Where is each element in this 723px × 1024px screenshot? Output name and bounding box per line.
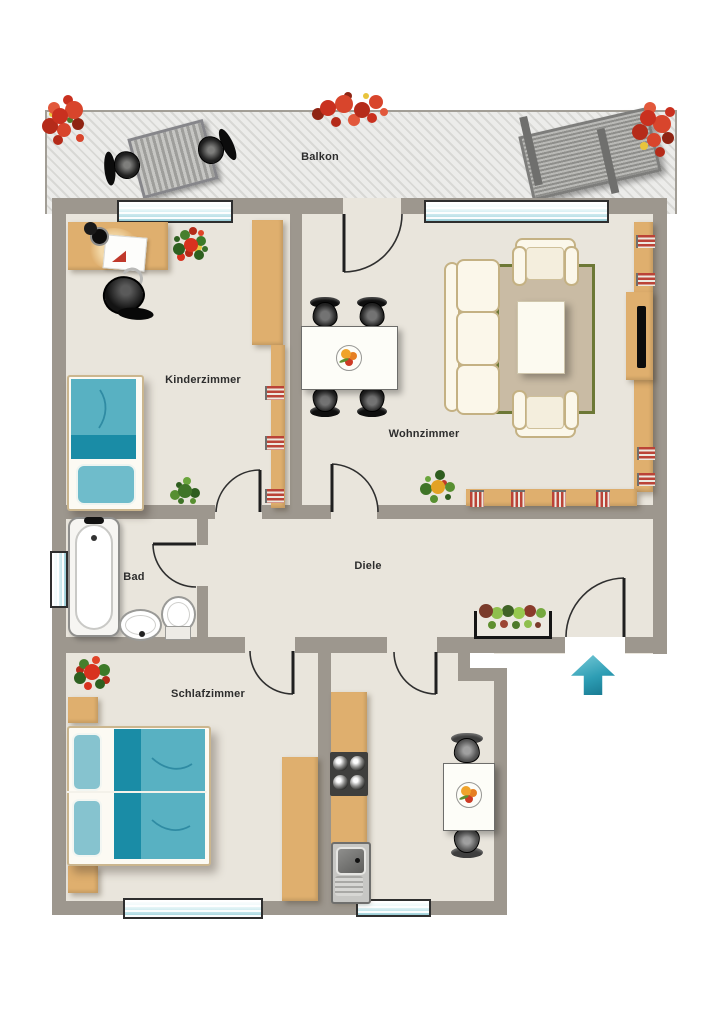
wall-bad-right-bottom bbox=[197, 586, 208, 639]
chair-back bbox=[117, 306, 154, 320]
basin-tap bbox=[139, 631, 145, 637]
sofa-cushion bbox=[456, 259, 500, 313]
green-plant bbox=[431, 480, 445, 494]
books bbox=[637, 473, 655, 486]
nightstand bbox=[68, 866, 98, 893]
armchair-arm bbox=[564, 390, 579, 430]
sink-drainboard bbox=[335, 876, 363, 896]
books bbox=[511, 490, 525, 507]
poinsettia-plant bbox=[184, 238, 198, 252]
flower-box bbox=[52, 108, 68, 124]
wall-bad-right-top bbox=[197, 519, 208, 545]
bathtub-tap bbox=[84, 517, 104, 524]
window-bad bbox=[50, 551, 68, 608]
chair-seat bbox=[360, 387, 385, 412]
dining-chair bbox=[357, 300, 387, 327]
room-label-diele: Diele bbox=[354, 560, 381, 572]
sink-tap bbox=[355, 858, 360, 863]
window-wohnzimmer bbox=[424, 200, 609, 223]
wall-diele-bottom-b bbox=[295, 637, 387, 653]
wall-diele-bottom-c bbox=[437, 637, 565, 653]
plant-box-plants bbox=[479, 604, 493, 618]
flower-box bbox=[640, 110, 656, 126]
fruit-leaf bbox=[459, 794, 469, 800]
flower-box bbox=[320, 100, 336, 116]
single-bed-pillow bbox=[76, 464, 136, 505]
books bbox=[552, 490, 566, 507]
bed-pillow bbox=[72, 733, 102, 791]
wall-entrance-right bbox=[625, 637, 667, 653]
armchair-arm bbox=[512, 390, 527, 430]
room-label-schlafzimmer: Schlafzimmer bbox=[171, 688, 245, 700]
nightstand bbox=[68, 697, 98, 723]
wall-kitchen-east bbox=[494, 668, 507, 915]
books bbox=[636, 235, 655, 248]
wall-bottom bbox=[52, 901, 507, 915]
wardrobe bbox=[282, 757, 318, 901]
books bbox=[596, 490, 610, 507]
poinsettia-plant bbox=[84, 664, 100, 680]
armchair bbox=[512, 388, 579, 438]
books bbox=[637, 447, 655, 460]
kinderzimmer-shelf-wide bbox=[252, 220, 283, 345]
stove-burner bbox=[350, 775, 365, 790]
single-bed-band bbox=[71, 435, 136, 459]
entrance-arrow bbox=[571, 655, 615, 695]
stove-burner bbox=[333, 756, 348, 771]
kinderzimmer-shelf-narrow bbox=[271, 345, 285, 508]
armchair-seat bbox=[526, 396, 564, 429]
coffee-table bbox=[517, 301, 565, 374]
fruit-bowl bbox=[336, 345, 362, 371]
kitchen-sink-basin bbox=[336, 847, 366, 875]
room-label-bad: Bad bbox=[123, 571, 144, 583]
books bbox=[636, 273, 655, 286]
double-bed-split bbox=[67, 791, 207, 793]
books bbox=[265, 489, 284, 503]
entrance-threshold bbox=[565, 637, 625, 654]
double-bed-band bbox=[114, 729, 141, 859]
dining-chair bbox=[310, 300, 340, 327]
armchair-arm bbox=[564, 246, 579, 286]
fruit-bowl bbox=[456, 782, 482, 808]
armchair-seat bbox=[526, 247, 564, 280]
chair-seat bbox=[313, 387, 338, 412]
wall-right bbox=[653, 198, 667, 654]
fruit-leaf bbox=[339, 357, 349, 363]
double-bed-blanket bbox=[141, 729, 205, 859]
sofa-cushion bbox=[456, 311, 500, 366]
toilet-tank bbox=[165, 626, 191, 640]
dining-chair bbox=[357, 387, 387, 414]
toilet-bowl bbox=[167, 602, 190, 627]
bathtub-drain bbox=[91, 535, 97, 541]
green-plant bbox=[178, 484, 192, 498]
bed-pillow bbox=[72, 799, 102, 857]
armchair-arm bbox=[512, 246, 527, 286]
books bbox=[265, 386, 284, 400]
chair-seat bbox=[360, 302, 385, 327]
window-kinderzimmer bbox=[117, 200, 233, 223]
exterior-notch bbox=[470, 653, 494, 668]
room-label-wohnzimmer: Wohnzimmer bbox=[389, 428, 460, 440]
tv bbox=[637, 306, 646, 368]
wall-mid-c bbox=[377, 505, 667, 519]
stove-burner bbox=[350, 756, 365, 771]
sofa-cushion bbox=[456, 364, 500, 415]
window-schlafzimmer bbox=[123, 898, 263, 919]
chair-seat bbox=[111, 148, 143, 182]
books bbox=[265, 436, 284, 450]
books bbox=[470, 490, 484, 507]
stove-burner bbox=[333, 775, 348, 790]
chair-seat bbox=[313, 302, 338, 327]
kitchen-chair bbox=[451, 736, 483, 763]
room-label-kinderzimmer: Kinderzimmer bbox=[165, 374, 241, 386]
kitchen-chair bbox=[451, 828, 483, 855]
dining-chair bbox=[310, 387, 340, 414]
chair-seat bbox=[454, 738, 480, 763]
floorplan: Balkon Kinderzimmer Wohnzimmer Bad Diele… bbox=[0, 0, 723, 1024]
room-label-balkon: Balkon bbox=[301, 151, 339, 163]
single-bed-blanket bbox=[71, 379, 136, 435]
bathtub bbox=[68, 517, 120, 637]
armchair bbox=[512, 238, 579, 288]
headphones bbox=[84, 222, 97, 235]
